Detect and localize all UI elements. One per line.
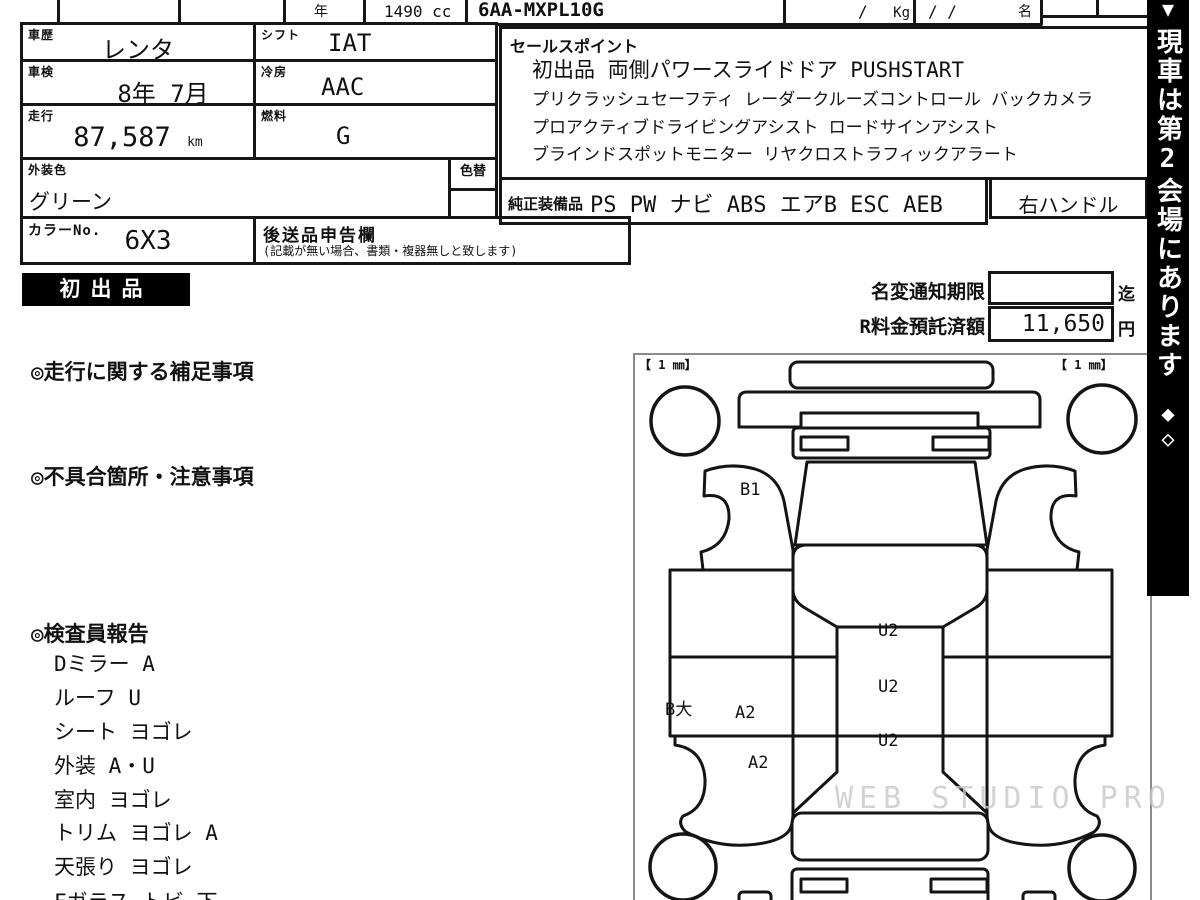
windshield [795, 462, 987, 545]
watermark: WEB STUDIO PRO [835, 781, 1172, 816]
top-weight-cell: / Kg [783, 0, 919, 26]
diagram-corner-left: 【 1 ㎜】 [639, 356, 697, 373]
report-item: 外装 A・U [54, 750, 155, 780]
damage-label-u2-2: U2 [878, 677, 898, 697]
exterior-color-cell: 外装色 グリーン 色替 [20, 157, 498, 219]
damage-label-u2-1: U2 [878, 621, 898, 641]
venue-banner-text: 現車は第2会場にあります [1150, 28, 1187, 380]
exterior-color-label: 外装色 [28, 161, 67, 178]
equipment-value: PS PW ナビ ABS エアB ESC AEB [590, 187, 943, 219]
mileage-cell: 走行 87,587 km [20, 103, 256, 160]
front-grille [793, 428, 990, 458]
report-item: ルーフ U [54, 682, 141, 712]
weight-unit: Kg [893, 5, 910, 21]
front-right-fender [987, 466, 1079, 570]
rear-hatch [792, 813, 988, 860]
capacity-slashes: / / [928, 2, 957, 21]
color-change-empty-box [448, 191, 495, 216]
report-item: 室内 ヨゴレ [54, 784, 172, 814]
exterior-color-value: グリーン [29, 186, 112, 216]
color-no-value: 6X3 [23, 226, 253, 256]
rear-right-wheel [1069, 835, 1135, 900]
sales-point-line: プロアクティブドライビングアシスト ロードサインアシスト [532, 113, 998, 138]
sales-point-line: 初出品 両側パワースライドドア PUSHSTART [532, 54, 964, 84]
rear-left-fender [675, 736, 793, 845]
down-triangle-icon: ▼ [1147, 0, 1189, 18]
damage-label-u2-3: U2 [878, 731, 898, 751]
front-cowl [739, 392, 1040, 427]
front-left-wheel [651, 387, 719, 455]
section-mileage-notes: ◎走行に関する補足事項 [31, 356, 254, 386]
damage-label-b-dai: B大 [665, 695, 692, 720]
diagram-corner-right: 【 1 ㎜】 [1055, 356, 1113, 373]
rear-bumper [792, 869, 988, 900]
name-change-label: 名変通知期限 [740, 277, 985, 304]
steering-value: 右ハンドル [1019, 193, 1119, 217]
sales-point-line: プリクラッシュセーフティ レーダークルーズコントロール バックカメラ [532, 85, 1093, 110]
color-change-box: 色替 [448, 160, 495, 191]
late-items-note: (記載が無い場合、書類・複器無しと致します) [263, 242, 517, 259]
deposit-value: 11,650 [1022, 309, 1111, 337]
report-item: Dミラー A [54, 648, 155, 678]
mileage-value-wrap: 87,587 km [23, 122, 253, 153]
model-code-value: 6AA-MXPL10G [478, 0, 604, 21]
capacity-unit: 名 [1018, 1, 1032, 21]
section-defects: ◎不具合箇所・注意事項 [31, 461, 254, 491]
mileage-unit: km [187, 135, 203, 150]
rear-left-wheel [650, 834, 716, 900]
diamond-marks: ◆◇ [1156, 402, 1181, 452]
deposit-unit: 円 [1118, 315, 1135, 340]
ac-value: AAC [256, 73, 495, 101]
displacement-value: 1490 cc [384, 2, 451, 21]
fuel-cell: 燃料 G [253, 103, 498, 160]
report-item: トリム ヨゴレ A [54, 817, 218, 847]
front-right-wheel [1068, 385, 1136, 453]
equipment-box: 純正装備品 PS PW ナビ ABS エアB ESC AEB [499, 177, 988, 225]
steering-box: 右ハンドル [989, 177, 1148, 219]
history-cell: 車歴 レンタ [20, 22, 256, 62]
ac-cell: 冷房 AAC [253, 59, 498, 106]
mileage-value: 87,587 [73, 122, 171, 153]
damage-label-a2-upper: A2 [735, 703, 755, 723]
hood [793, 545, 987, 627]
shift-value: IAT [256, 29, 495, 57]
sales-point-box: セールスポイント 初出品 両側パワースライドドア PUSHSTART プリクラッ… [499, 26, 1154, 180]
report-item: 天張り ヨゴレ [54, 851, 193, 881]
sales-point-line: ブラインドスポットモニター リヤクロストラフィックアラート [532, 140, 1018, 165]
deposit-label: R料金預託済額 [740, 312, 985, 339]
color-no-cell: カラーNo. 6X3 [20, 216, 256, 265]
damage-label-a2-lower: A2 [748, 753, 768, 773]
venue-banner: ▼ 現車は第2会場にあります ◆◇ [1147, 0, 1189, 596]
name-change-value-box [988, 271, 1114, 305]
color-change-label: 色替 [460, 164, 486, 179]
front-bumper [790, 362, 993, 388]
damage-label-b1: B1 [740, 480, 760, 500]
top-small-cell-2 [1096, 0, 1154, 18]
car-damage-diagram: 【 1 ㎜】 【 1 ㎜】 B1 B大 A2 A2 U2 U2 U2 [633, 353, 1152, 900]
name-change-suffix: 迄 [1118, 280, 1135, 305]
fuel-value: G [256, 122, 495, 150]
top-small-cell-1 [1040, 0, 1102, 18]
shift-cell: シフト IAT [253, 22, 498, 62]
weight-slash: / [858, 2, 868, 21]
deposit-value-box: 11,650 [988, 306, 1114, 342]
section-inspector-report: ◎検査員報告 [31, 618, 149, 648]
year-label: 年 [314, 1, 328, 21]
auction-sheet: 年 1490 cc 6AA-MXPL10G / Kg / / 名 車歴 レンタ … [0, 0, 1200, 900]
report-item: シート ヨゴレ [54, 716, 193, 746]
report-item: Fガラス トビ 下 [54, 886, 218, 900]
equipment-label: 純正装備品 [508, 193, 583, 214]
inspection-cell: 車検 8年 7月 [20, 59, 256, 106]
top-capacity-cell: / / 名 [913, 0, 1043, 26]
first-listing-badge: 初出品 [22, 273, 190, 306]
top-model-code-cell: 6AA-MXPL10G [465, 0, 789, 26]
